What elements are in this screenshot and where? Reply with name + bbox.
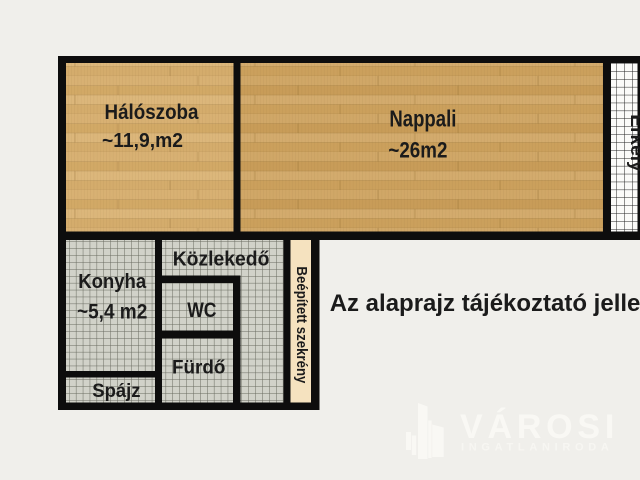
svg-text:Hálószoba: Hálószoba [105,101,199,124]
svg-text:VÁROSI: VÁROSI [460,408,619,446]
svg-text:Fürdő: Fürdő [172,358,225,379]
svg-text:Konyha: Konyha [78,271,147,293]
svg-text:INGATLANIRODA: INGATLANIRODA [461,442,614,454]
svg-text:Az alaprajz tájékoztató jelleg: Az alaprajz tájékoztató jellegű [330,290,640,317]
svg-text:~11,9,m2: ~11,9,m2 [102,130,183,152]
svg-text:Beépített szekrény: Beépített szekrény [293,266,309,383]
svg-text:Spájz: Spájz [92,380,140,402]
svg-text:~26m2: ~26m2 [388,137,447,162]
svg-text:WC: WC [187,299,216,322]
svg-text:Nappali: Nappali [389,105,456,131]
svg-text:~5,4 m2: ~5,4 m2 [77,300,147,323]
svg-text:Közlekedő: Közlekedő [173,249,270,271]
svg-text:Erkély: Erkély [627,114,640,172]
